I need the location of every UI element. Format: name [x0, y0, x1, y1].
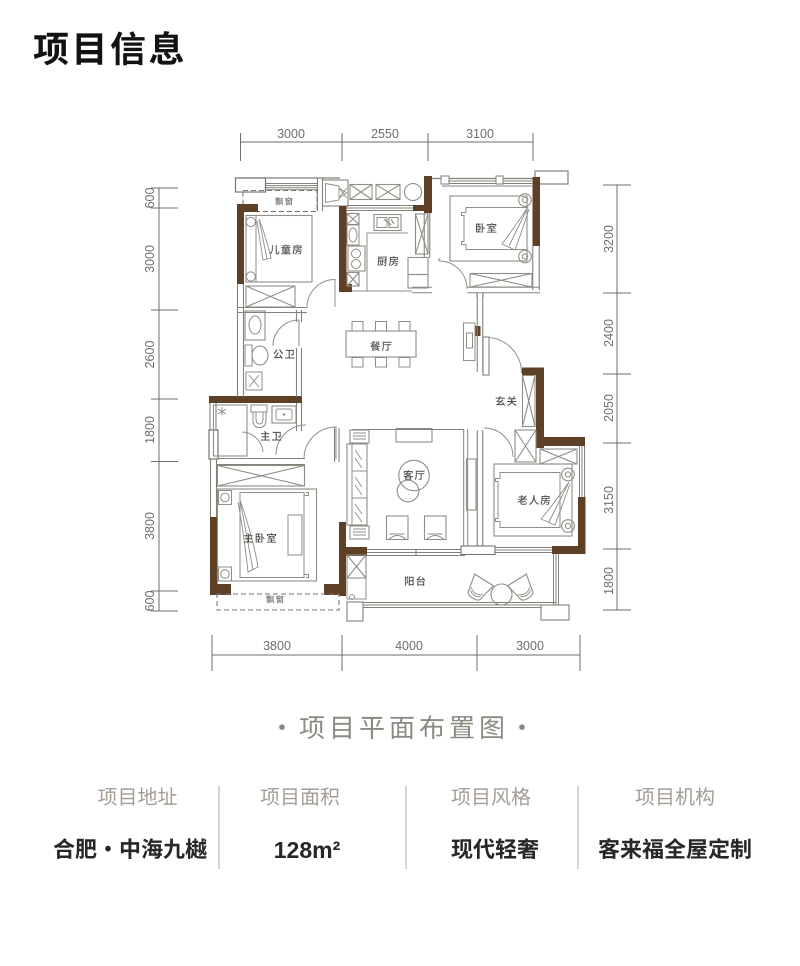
svg-text:3150: 3150 [602, 486, 616, 514]
svg-text:2050: 2050 [602, 394, 616, 422]
svg-text:3800: 3800 [143, 512, 157, 540]
svg-text:1800: 1800 [602, 567, 616, 595]
svg-text:2600: 2600 [143, 341, 157, 369]
svg-text:2400: 2400 [602, 319, 616, 347]
svg-text:1800: 1800 [143, 416, 157, 444]
svg-text:600: 600 [143, 188, 157, 209]
svg-text:3100: 3100 [466, 127, 494, 141]
svg-text:4000: 4000 [395, 639, 423, 653]
svg-text:3800: 3800 [263, 639, 291, 653]
svg-text:600: 600 [143, 591, 157, 612]
svg-text:3000: 3000 [277, 127, 305, 141]
svg-text:128m²: 128m² [274, 837, 341, 863]
svg-text:3000: 3000 [143, 245, 157, 273]
svg-text:2550: 2550 [371, 127, 399, 141]
svg-text:3200: 3200 [602, 225, 616, 253]
svg-text:3000: 3000 [516, 639, 544, 653]
